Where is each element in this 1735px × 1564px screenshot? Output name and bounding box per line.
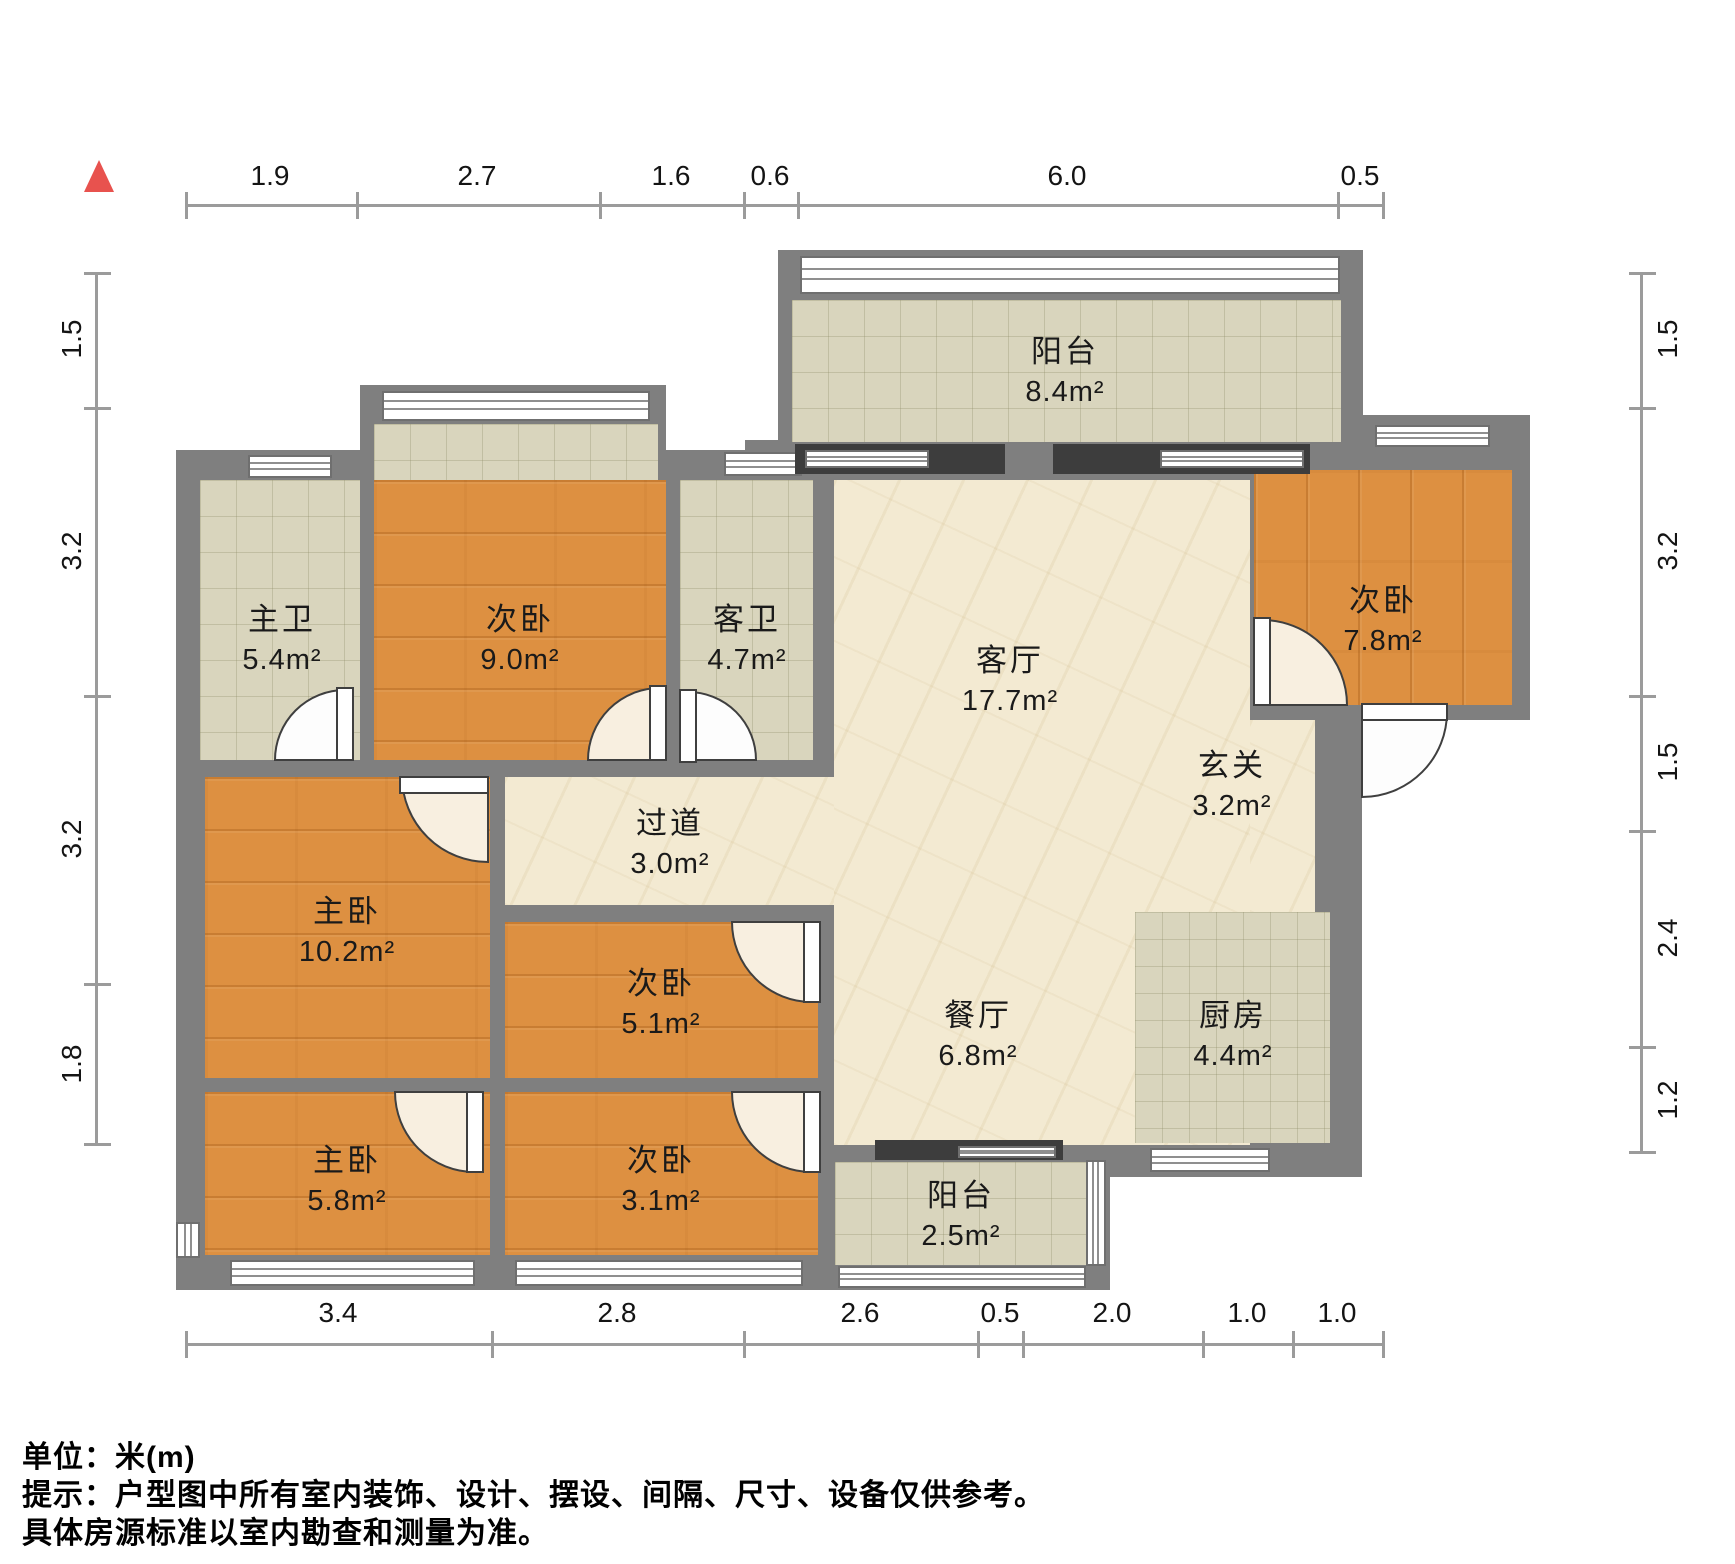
room-label-bedroom-78: 次卧7.8m² — [1343, 575, 1422, 658]
room-label-entry-hall: 玄关3.2m² — [1192, 740, 1271, 823]
dim-left-2: 3.2 — [56, 820, 88, 859]
window-top-balcony — [800, 256, 1340, 294]
tick — [1022, 1331, 1025, 1358]
dim-bottom-4: 2.0 — [1093, 1297, 1132, 1329]
dim-top-2: 1.6 — [652, 160, 691, 192]
dim-left-3: 1.8 — [56, 1045, 88, 1084]
room-label-master-bath: 主卫5.4m² — [242, 594, 321, 677]
tick — [743, 1331, 746, 1358]
tick — [1629, 1046, 1656, 1049]
dimension-line-left — [95, 272, 98, 1146]
tick — [1292, 1331, 1295, 1358]
room-label-corridor: 过道3.0m² — [630, 798, 709, 881]
window-master-bath — [248, 455, 332, 478]
room-label-guest-bath: 客卫4.7m² — [707, 594, 786, 677]
room-label-balcony-bottom: 阳台2.5m² — [921, 1170, 1000, 1253]
dim-bottom-6: 1.0 — [1318, 1297, 1357, 1329]
window-left-wall — [176, 1222, 200, 1258]
dim-right-1: 3.2 — [1652, 532, 1684, 571]
room-label-bedroom-31: 次卧3.1m² — [621, 1135, 700, 1218]
window-dining-balcony — [958, 1146, 1056, 1158]
tick — [1382, 1331, 1385, 1358]
dim-right-0: 1.5 — [1652, 320, 1684, 359]
dim-top-0: 1.9 — [251, 160, 290, 192]
window-balcony-bottom — [838, 1266, 1086, 1288]
tick — [185, 1331, 188, 1358]
tick — [185, 192, 188, 219]
window-living-balcony-left — [805, 450, 929, 468]
tick — [356, 192, 359, 219]
dim-top-4: 6.0 — [1048, 160, 1087, 192]
window-kitchen — [1150, 1148, 1270, 1172]
dim-right-2: 1.5 — [1652, 743, 1684, 782]
tick — [1202, 1331, 1205, 1358]
dim-left-1: 3.2 — [56, 532, 88, 571]
tick — [1629, 830, 1656, 833]
tick — [599, 192, 602, 219]
dim-left-0: 1.5 — [56, 320, 88, 359]
floor-bay-niche — [374, 424, 658, 480]
room-label-master-58: 主卧5.8m² — [307, 1135, 386, 1218]
tick — [84, 272, 111, 275]
tick — [84, 695, 111, 698]
tick — [491, 1331, 494, 1358]
tick — [84, 1143, 111, 1146]
tick — [1629, 272, 1656, 275]
tick — [84, 407, 111, 410]
window-bay — [382, 391, 650, 421]
room-label-bedroom-51: 次卧5.1m² — [621, 958, 700, 1041]
footer-disclaimer-2: 具体房源标准以室内勘查和测量为准。 — [22, 1508, 549, 1552]
window-living-balcony-right — [1160, 450, 1304, 468]
door-entry — [1362, 712, 1447, 797]
window-bedroom-78-top — [1375, 425, 1490, 447]
tick — [977, 1331, 980, 1358]
dim-top-3: 0.6 — [751, 160, 790, 192]
dim-bottom-3: 0.5 — [981, 1297, 1020, 1329]
dim-bottom-5: 1.0 — [1228, 1297, 1267, 1329]
dim-bottom-0: 3.4 — [319, 1297, 358, 1329]
dim-bottom-2: 2.6 — [841, 1297, 880, 1329]
room-label-master-102: 主卧10.2m² — [299, 886, 395, 969]
window-balcony-bottom-right — [1086, 1160, 1106, 1266]
window-guest-bath — [724, 452, 802, 476]
room-label-dining: 餐厅6.8m² — [938, 990, 1017, 1073]
tick — [1629, 1151, 1656, 1154]
dim-right-3: 2.4 — [1652, 919, 1684, 958]
tick — [1629, 407, 1656, 410]
room-label-bedroom-9: 次卧9.0m² — [480, 594, 559, 677]
dimension-line-right — [1640, 272, 1643, 1154]
room-label-kitchen: 厨房4.4m² — [1193, 990, 1272, 1073]
dim-right-4: 1.2 — [1652, 1081, 1684, 1120]
tick — [84, 983, 111, 986]
dim-top-1: 2.7 — [458, 160, 497, 192]
dimension-line-top — [185, 204, 1384, 207]
tick — [1337, 192, 1340, 219]
floorplan-screenshot: 阳台8.4m² 主卫5.4m² 次卧9.0m² 客卫4.7m² 客厅17.7m²… — [0, 0, 1735, 1564]
dim-bottom-1: 2.8 — [598, 1297, 637, 1329]
room-label-balcony-top: 阳台8.4m² — [1025, 326, 1104, 409]
room-label-living: 客厅17.7m² — [962, 635, 1058, 718]
tick — [1629, 695, 1656, 698]
window-master-58 — [230, 1260, 475, 1286]
tick — [1382, 192, 1385, 219]
dim-top-5: 0.5 — [1341, 160, 1380, 192]
tick — [797, 192, 800, 219]
window-bedroom-31 — [515, 1260, 803, 1286]
north-arrow-icon — [84, 160, 114, 192]
tick — [743, 192, 746, 219]
wall-slider-gap — [1005, 444, 1053, 474]
